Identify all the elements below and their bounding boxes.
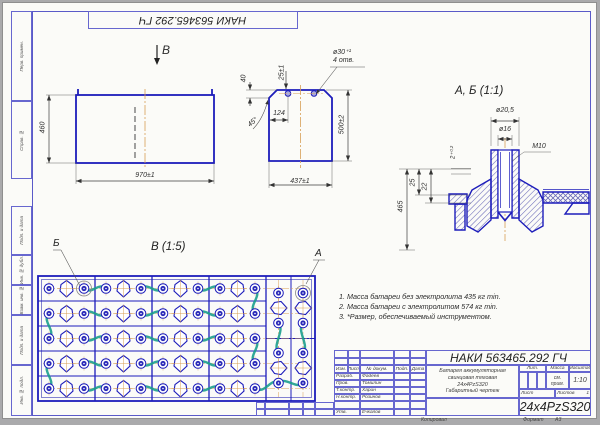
dim-detail-22: 22 [422,179,429,195]
reserve-cell [256,409,265,416]
note-line: 1. Масса батареи без электролита 435 кг … [339,292,591,302]
title-block-role: Утв. [334,409,360,416]
title-block-role [334,401,360,409]
title-block-sign-cell [394,394,410,401]
title-block-name: Ечкалов [360,409,394,416]
title-block-date-cell [410,380,426,387]
note-line: 2. Масса батареи с электролитом 574 кг m… [339,302,591,312]
title-block-lit-cell [537,372,546,389]
title-block-empty-cell [394,350,410,358]
title-block-sign-cell [394,401,410,409]
copied-label: Копировал [421,417,447,423]
title-block-date-cell [410,387,426,394]
title-block-date-cell [410,401,426,409]
title-block-description: Батарея аккумуляторная свинцовая тяговая… [426,365,519,398]
title-block-sign-cell [394,387,410,394]
dim-detail-thread: М10 [526,143,552,150]
title-block-role: Пров. [334,380,360,387]
title-block-name: Розинов [360,394,394,401]
dim-hole-pitch: 124 [265,110,293,117]
designation-text: НАКИ 563465.292 ГЧ [450,351,567,365]
title-block-empty-cell [334,358,348,365]
description-line: свинцовая тяговая [448,375,497,382]
detail-view-title: А, Б (1:1) [455,85,503,97]
title-block-col-izm: Изм. [334,365,348,373]
dim-detail-outer-dia: ø20,5 [483,107,527,114]
title-block-lit-cell [528,372,537,389]
callout-hole-count: 4 отв. [333,57,369,64]
section-label-a: А [315,248,322,259]
title-block-scale-value: 1:10 [569,372,591,389]
reserve-cell [289,402,303,409]
dim-front-width: 970±1 [115,172,175,179]
sheets-value: 1 [586,391,589,396]
dim-front-height: 460 [40,116,47,140]
title-block-name: Томилин [360,380,394,387]
dim-chamfer-height: 40 [241,67,248,91]
dim-detail-465: 465 [398,195,405,219]
title-block-col-docnum: № докум. [360,365,394,373]
dim-detail-lip: 2⁺⁰·² [450,139,457,167]
title-block-role: Н.контр. [334,394,360,401]
dim-detail-inner-dia: ø16 [487,126,523,133]
title-block-date-cell [410,394,426,401]
description-line: Батарея аккумуляторная [439,368,506,375]
title-block-lit-label: Лит. [519,365,546,372]
reserve-cell [265,409,289,416]
format-label: Формат [523,417,544,423]
top-view-title: В (1:5) [151,241,186,253]
part-code-text: 24x4PzS320 [520,400,591,414]
reserve-cell [256,402,265,409]
title-block-empty-cell [348,358,360,365]
sheets-label: Листов [557,391,574,396]
description-line: Габаритный чертеж [446,388,500,395]
title-block-empty-cell [394,358,410,365]
title-block-sign-cell [394,409,410,416]
reserve-cell [265,402,289,409]
callout-hole-dia: ø30⁺¹ [333,48,369,56]
title-block-name: Харин [360,387,394,394]
title-block-date-cell [410,373,426,380]
title-block-role: Разраб. [334,373,360,380]
title-block-empty-cell [410,358,426,365]
drawing-page: Перв. примен. Справ. № Подп. и дата Инв.… [0,0,600,425]
title-block-date-cell [410,409,426,416]
title-block-col-data: Дата [410,365,426,373]
title-block-sign-cell [394,380,410,387]
note-line: 3. *Размер, обеспечиваемый инструментом. [339,312,591,322]
section-label-b: Б [53,238,60,249]
title-block-sheets-cell: Листов 1 [555,389,591,398]
reserve-cell [303,409,315,416]
title-block-empty-cell [360,358,394,365]
format-value: А3 [555,417,561,423]
title-block-mass-value: см. прим. [546,372,569,389]
title-block-empty-cell [410,350,426,358]
drawing-sheet: Перв. примен. Справ. № Подп. и дата Инв.… [2,2,597,419]
title-block-sheet-label: Лист [519,389,555,398]
title-block-sign-cell [394,373,410,380]
dim-side-height: 500±2 [339,110,346,140]
dim-side-width: 437±1 [270,178,330,185]
reserve-cell [289,409,303,416]
notes-block: 1. Масса батареи без электролита 435 кг … [339,292,591,322]
title-block-designation: НАКИ 563465.292 ГЧ [426,350,591,365]
title-block-empty-cell [348,350,360,358]
title-block-empty-cell [426,398,519,416]
title-block-name: Фадеев [360,373,394,380]
reserve-cell [315,409,334,416]
title-block-role: Т.контр. [334,387,360,394]
title-block-col-list: Лист [348,365,360,373]
title-block-empty-cell [360,350,394,358]
dim-detail-25: 25 [410,175,417,191]
reserve-cell [315,402,334,409]
title-block-name [360,401,394,409]
title-block-scale-label: Масштаб [569,365,591,372]
title-block-mass-label: Масса [546,365,569,372]
title-block-empty-cell [334,350,348,358]
view-arrow-label: В [162,43,170,57]
title-block-lit-cell [519,372,528,389]
title-block-col-podp: Подп. [394,365,410,373]
dim-hole-offset: 25±1 [279,58,286,88]
reserve-cell [303,402,315,409]
title-block-part-code: 24x4PzS320 [519,398,591,416]
